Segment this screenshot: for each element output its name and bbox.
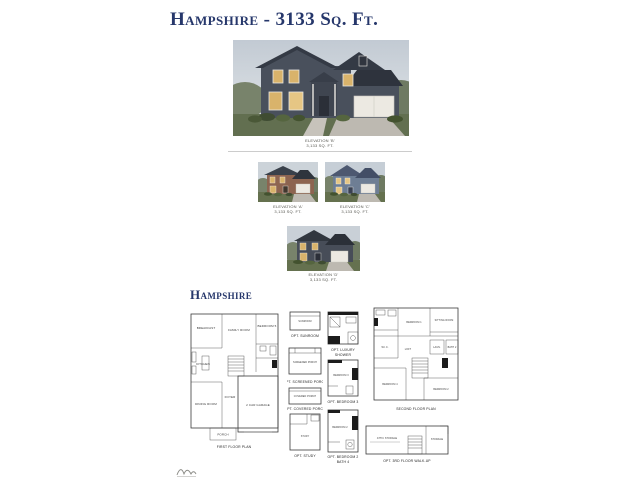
elevation-photo-a bbox=[258, 162, 318, 202]
room-sunroom: SUNROOM bbox=[298, 320, 311, 323]
second-floor-plan: BEDROOM 1 SITTING ROOM W.I.C. LOFT LAUN.… bbox=[372, 306, 460, 414]
room-kitchen: KITCHEN bbox=[196, 362, 210, 366]
room-sitting: SITTING ROOM bbox=[435, 319, 454, 322]
elevation-a-sqft: 3,133 SQ. FT. bbox=[250, 209, 326, 214]
opt-bedroom2-bath4-caption-2: BATH 4 bbox=[337, 460, 350, 464]
room-family: FAMILY ROOM bbox=[228, 328, 250, 332]
room-breakfast: BREAKFAST bbox=[197, 326, 216, 330]
opt-bedroom3-plan: BEDROOM 3 OPT. BEDROOM 3 bbox=[324, 358, 362, 406]
opt-sunroom-caption: OPT. SUNROOM bbox=[291, 334, 319, 338]
elevation-main-caption: ELEVATION 'B' 3,133 SQ. FT. bbox=[260, 138, 380, 148]
opt-sunroom-plan: SUNROOM OPT. SUNROOM bbox=[287, 310, 323, 340]
room-storage: STORAGE bbox=[431, 438, 444, 441]
opt-bedroom2-bath4-plan: BEDROOM 2 OPT. BEDROOM 2 BATH 4 bbox=[324, 408, 362, 464]
builder-logo-mark bbox=[176, 466, 198, 478]
room-bedroom5: BEDROOM 5 bbox=[258, 324, 277, 328]
first-floor-plan: BREAKFAST FAMILY ROOM BEDROOM 5 KITCHEN … bbox=[188, 308, 283, 455]
opt-luxury-shower-plan: OPT. LUXURY SHOWER bbox=[324, 310, 362, 358]
elevation-photo-d bbox=[287, 226, 360, 271]
opt-study-plan: STUDY OPT. STUDY bbox=[287, 412, 323, 460]
room-garage: 2 CAR GARAGE bbox=[246, 403, 270, 407]
first-floor-caption: FIRST FLOOR PLAN bbox=[217, 445, 252, 449]
second-floor-caption: SECOND FLOOR PLAN bbox=[396, 407, 436, 411]
elevation-d-sqft: 3,133 SQ. FT. bbox=[280, 277, 367, 282]
page-title: Hampshire - 3133 Sq. Ft. bbox=[170, 9, 378, 31]
opt-covered-porch-caption: OPT. COVERED PORCH bbox=[287, 407, 323, 411]
elevation-c-caption: ELEVATION 'C' 3,133 SQ. FT. bbox=[317, 204, 393, 214]
room-foyer: FOYER bbox=[225, 395, 237, 399]
opt-covered-porch-plan: COVERED PORCH OPT. COVERED PORCH bbox=[287, 386, 323, 412]
elevation-a-rendering bbox=[258, 162, 318, 202]
opt-luxury-shower-caption-1: OPT. LUXURY bbox=[331, 348, 355, 352]
opt-bedroom3-caption: OPT. BEDROOM 3 bbox=[328, 400, 359, 404]
elevation-photo-main bbox=[233, 40, 409, 136]
room-bedroom2: BEDROOM 2 bbox=[433, 388, 449, 391]
elevation-a-caption: ELEVATION 'A' 3,133 SQ. FT. bbox=[250, 204, 326, 214]
room-attic-storage: ATTIC STORAGE bbox=[377, 437, 398, 440]
room-bath2: BATH 2 bbox=[448, 346, 457, 349]
elevation-photo-c bbox=[325, 162, 385, 202]
room-bedroom1: BEDROOM 1 bbox=[406, 321, 422, 324]
room-covered-porch: COVERED PORCH bbox=[294, 395, 317, 398]
elevation-d-rendering bbox=[287, 226, 360, 271]
room-wic: W.I.C. bbox=[381, 346, 388, 349]
floorplan-section-title: Hampshire bbox=[190, 287, 252, 303]
elevation-c-rendering bbox=[325, 162, 385, 202]
elevation-d-caption: ELEVATION 'D' 3,133 SQ. FT. bbox=[280, 272, 367, 282]
opt-walkup-caption: OPT. 3RD FLOOR WALK-UP bbox=[383, 459, 431, 463]
room-loft: LOFT bbox=[405, 348, 412, 351]
room-bedroom4: BEDROOM 4 bbox=[382, 383, 398, 386]
plan-sheet-page: Hampshire - 3133 Sq. Ft. bbox=[0, 0, 640, 480]
opt-screened-porch-plan: SCREENED PORCH OPT. SCREENED PORCH bbox=[287, 346, 323, 386]
room-screened-porch: SCREENED PORCH bbox=[293, 361, 317, 364]
room-dining: DINING ROOM bbox=[195, 402, 217, 406]
room-porch: PORCH bbox=[217, 433, 228, 437]
elevation-b-rendering bbox=[233, 40, 409, 136]
opt-luxury-shower-caption-2: SHOWER bbox=[335, 353, 352, 357]
section-divider bbox=[228, 151, 412, 152]
elevation-main-sqft: 3,133 SQ. FT. bbox=[260, 143, 380, 148]
opt-bedroom2-bath4-caption-1: OPT. BEDROOM 2 bbox=[328, 455, 359, 459]
room-opt-bedroom3: BEDROOM 3 bbox=[333, 374, 349, 377]
room-opt-bedroom2: BEDROOM 2 bbox=[332, 426, 348, 429]
opt-study-caption: OPT. STUDY bbox=[294, 454, 316, 458]
room-study: STUDY bbox=[301, 435, 310, 438]
elevation-c-sqft: 3,133 SQ. FT. bbox=[317, 209, 393, 214]
opt-screened-porch-caption: OPT. SCREENED PORCH bbox=[287, 380, 323, 384]
opt-walkup-plan: ATTIC STORAGE STORAGE OPT. 3RD FLOOR WAL… bbox=[360, 422, 458, 464]
room-laundry: LAUN. bbox=[433, 346, 441, 349]
